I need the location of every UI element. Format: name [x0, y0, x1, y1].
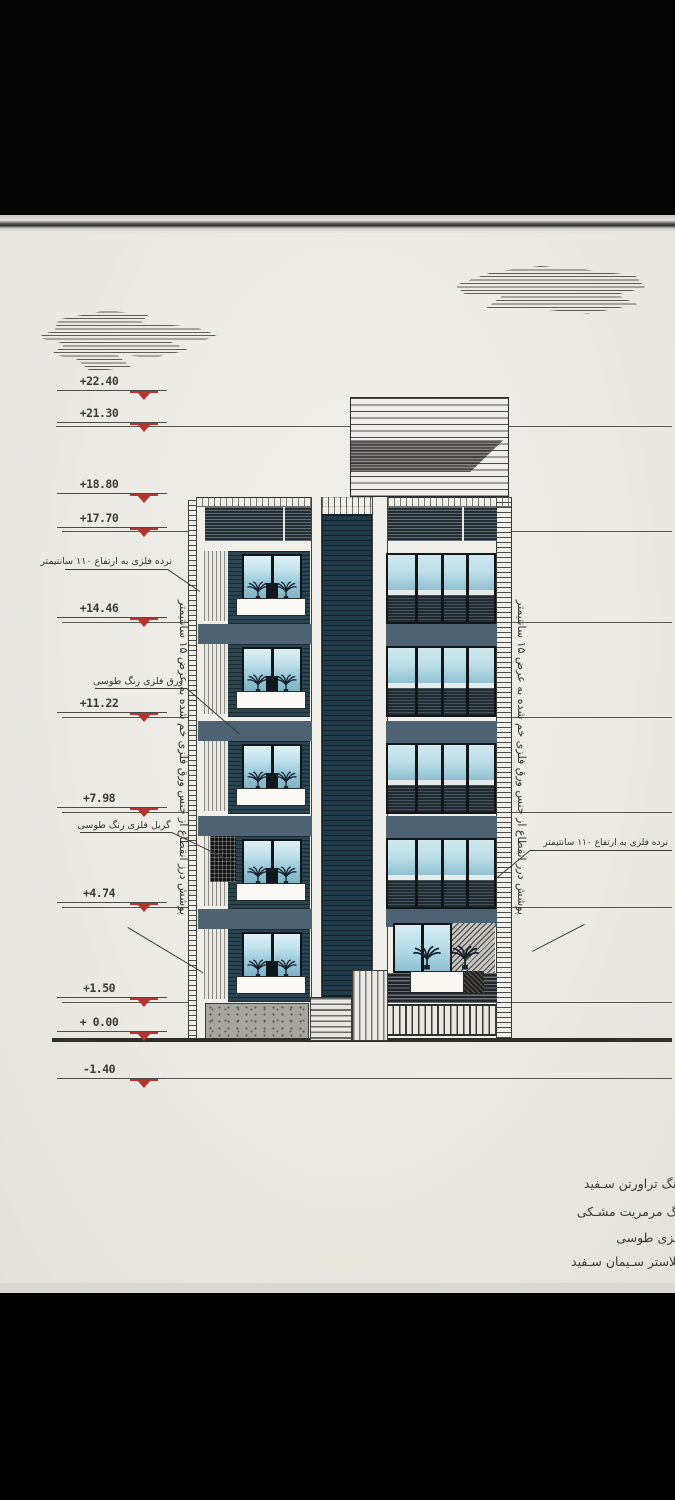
- stair-strip-cap: [322, 497, 372, 514]
- elevation-value: +22.40: [63, 374, 135, 388]
- left-floor-2: [196, 812, 312, 909]
- window-mullion: [466, 840, 469, 907]
- window-left-floor-2: [242, 839, 302, 885]
- window-right-floor-5: [386, 553, 496, 624]
- window-sill-object: [266, 773, 278, 788]
- wood-slat-strip: [204, 551, 228, 621]
- roof-bulkhead: [350, 397, 509, 497]
- level-flag-icon: [129, 494, 159, 505]
- window-left-floor-5: [242, 554, 302, 600]
- window-left-floor-1: [242, 932, 302, 978]
- window-mullion: [441, 840, 444, 907]
- right-floor-4: [386, 620, 497, 717]
- entry-door-slats: [352, 970, 388, 1041]
- window-sill-object: [266, 868, 278, 883]
- window-mullion: [466, 745, 469, 812]
- right-floor-5: [386, 527, 497, 624]
- spandrel-band: [198, 721, 312, 741]
- leader-line: [80, 832, 172, 833]
- spandrel-band: [198, 816, 312, 836]
- level-flag-icon: [129, 528, 159, 539]
- photo-of-elevation-drawing: +22.40 +21.30 +18.80 +17.70 +14.46 +11.2…: [0, 0, 675, 1500]
- window-mullion: [466, 555, 469, 622]
- paper-top-edge: [0, 215, 675, 233]
- elevation-value: +11.22: [63, 696, 135, 710]
- level-flag-icon: [129, 998, 159, 1009]
- window-mullion: [441, 648, 444, 715]
- level-flag-icon: [129, 1079, 159, 1090]
- balcony-slab: [236, 976, 306, 994]
- level-flag-icon: [129, 618, 159, 629]
- railing-annotation-right: نرده فلزی به ارتفاع ۱۱۰ سانتیمتر: [588, 838, 668, 848]
- right-floor-2: [386, 812, 497, 909]
- elevation-value: +7.98: [63, 791, 135, 805]
- metal-grille-annotation: گریل فلزی رنگ طوسی: [76, 820, 172, 831]
- leader-line: [95, 688, 187, 689]
- elevation-value: -1.40: [63, 1062, 135, 1076]
- balcony-slab: [236, 598, 306, 616]
- window-sill-object: [266, 961, 278, 976]
- metal-grille-block: [210, 836, 236, 882]
- elevation-value: + 0.00: [63, 1015, 135, 1029]
- window-sill-object: [266, 676, 278, 691]
- window-mullion: [415, 555, 418, 622]
- wood-slat-strip: [204, 741, 228, 811]
- legend-item-travertine: سنگ تراورتن سـفید: [577, 1176, 675, 1191]
- spandrel-band: [386, 721, 497, 743]
- spandrel-band: [386, 816, 497, 838]
- metal-sheet-annotation: ورق فلزی رنگ طوسی: [90, 676, 186, 687]
- left-floor-4: [196, 620, 312, 717]
- window-mullion: [415, 840, 418, 907]
- expansion-joint-note-left: پوشش درز انقطاع از جنس ورق فلزی خم شده ب…: [177, 653, 190, 915]
- legend-item-metal-sheet: ورق فلزی طوسی: [590, 1230, 675, 1245]
- balcony-slab: [236, 883, 306, 901]
- legend-item-plaster: پلاستر سـیمان سـفید: [540, 1254, 675, 1269]
- railing-annotation-left: نرده فلزی به ارتفاع ۱۱۰ سانتیمتر: [62, 556, 172, 567]
- paper-bottom-shadow: [0, 1283, 675, 1293]
- legend-item-marble: سنگ مرمریت مشـکی: [482, 1204, 675, 1219]
- window-right-floor-4: [386, 646, 496, 717]
- spandrel-band: [198, 909, 312, 929]
- entry-shutter: [310, 997, 352, 1041]
- window-left-floor-3: [242, 744, 302, 790]
- level-flag-icon: [129, 391, 159, 402]
- right-floor-3: [386, 717, 497, 814]
- leader-line: [65, 569, 168, 570]
- level-flag-icon: [129, 1032, 159, 1043]
- leader-line: [530, 850, 672, 851]
- level-flag-icon: [129, 423, 159, 434]
- level-flag-icon: [129, 808, 159, 819]
- left-floor-1: [196, 905, 312, 1002]
- plant-icon: [410, 939, 444, 975]
- right-ground-floor: [386, 905, 497, 1002]
- elevation-value: +4.74: [63, 886, 135, 900]
- spandrel-band: [386, 624, 497, 646]
- window-left-floor-4: [242, 647, 302, 693]
- stair-glazing-strip: [322, 514, 372, 997]
- ground-fence-railing: [386, 1004, 496, 1036]
- left-floor-3: [196, 717, 312, 814]
- elevation-value: +1.50: [63, 981, 135, 995]
- level-flag-icon: [129, 903, 159, 914]
- elevation-value: +18.80: [63, 477, 135, 491]
- window-sill-object: [266, 583, 278, 598]
- balcony-slab: [236, 691, 306, 709]
- window-mullion: [415, 745, 418, 812]
- window-mullion: [441, 555, 444, 622]
- expansion-joint-note-right: پوشش درز انقطاع از جنس ورق فلزی خم شده ب…: [515, 653, 528, 915]
- level-flag-icon: [129, 713, 159, 724]
- stair-strip-pilaster-left: [311, 497, 322, 1000]
- plant-icon: [448, 939, 482, 975]
- top-letterbox-bar: [0, 0, 675, 215]
- left-floor-5: [196, 527, 312, 624]
- window-right-floor-3: [386, 743, 496, 814]
- stone-base-wall: [205, 1003, 309, 1041]
- wood-slat-strip: [204, 929, 228, 999]
- window-mullion: [466, 648, 469, 715]
- balcony-slab: [236, 788, 306, 806]
- elevation-value: +21.30: [63, 406, 135, 420]
- roof-bulkhead-shadow-hatch: [351, 440, 508, 472]
- window-mullion: [415, 648, 418, 715]
- elevation-value: +14.46: [63, 601, 135, 615]
- bottom-letterbox-bar: [0, 1293, 675, 1500]
- window-mullion: [441, 745, 444, 812]
- spandrel-band: [198, 624, 312, 644]
- expansion-joint-right-edge: [496, 497, 512, 1042]
- window-right-floor-2: [386, 838, 496, 909]
- elevation-value: +17.70: [63, 511, 135, 525]
- wood-slat-strip: [204, 644, 228, 714]
